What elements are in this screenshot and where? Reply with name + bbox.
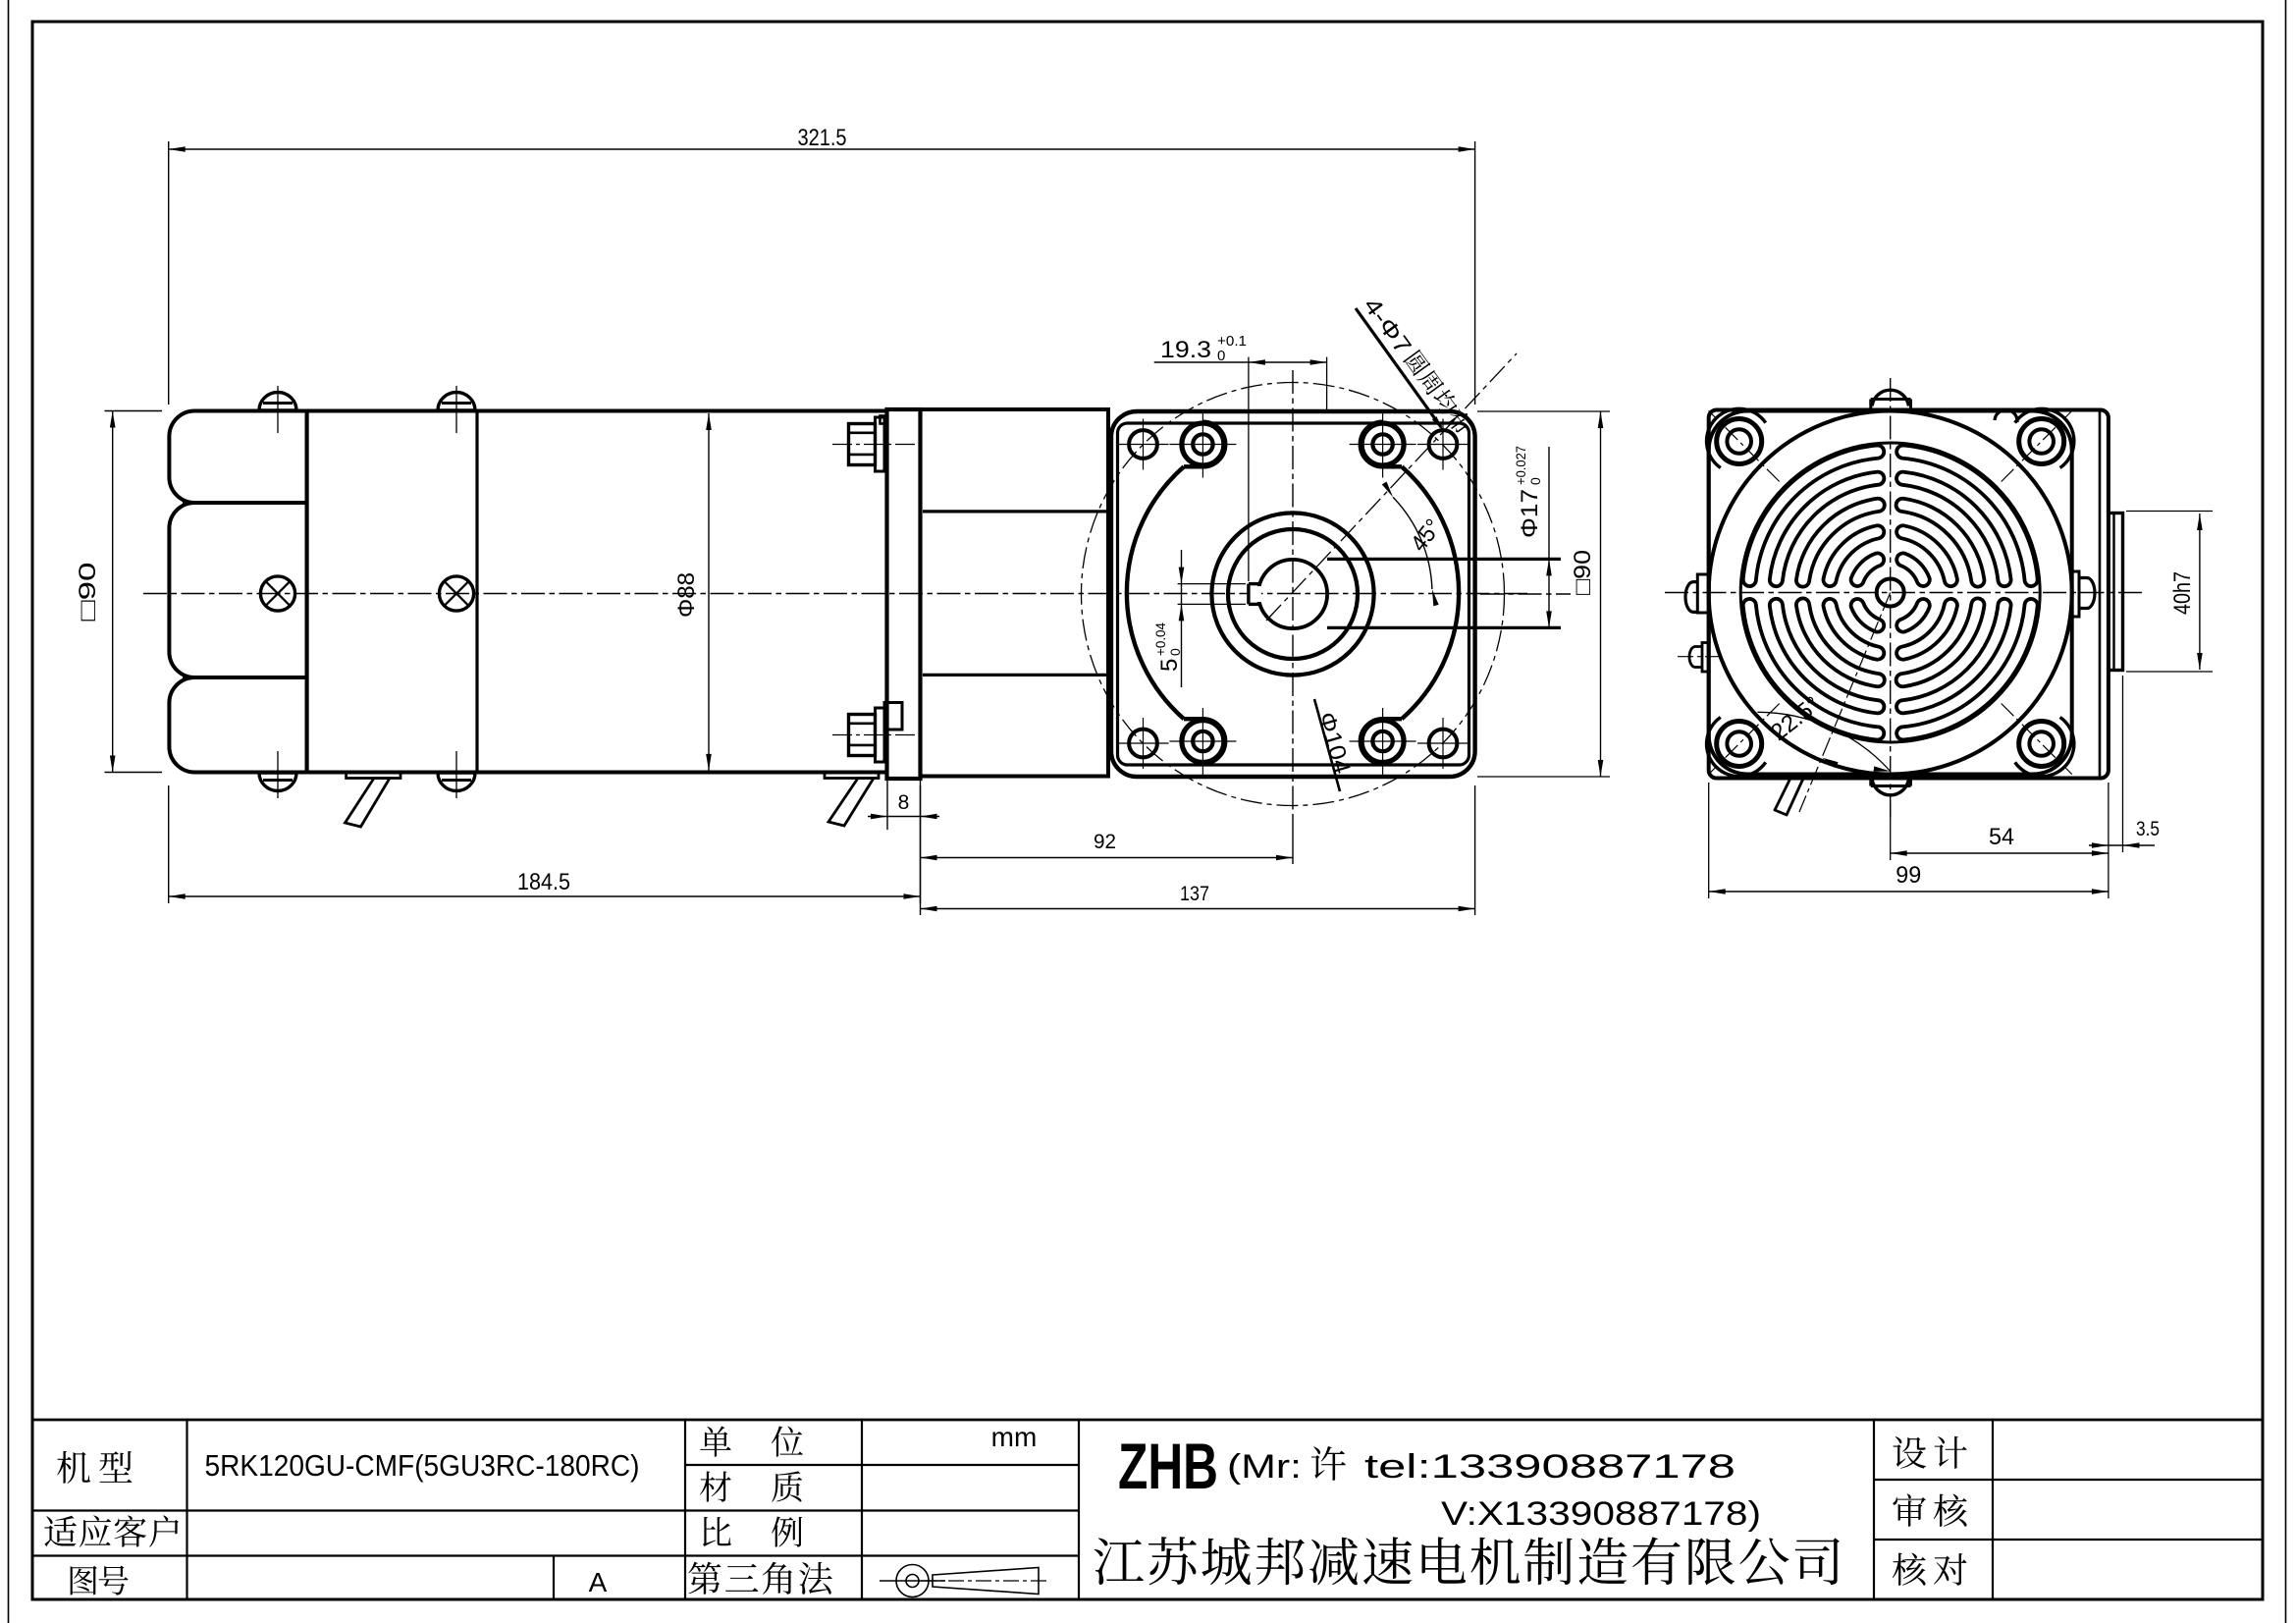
svg-text:40h7: 40h7 (2169, 571, 2196, 615)
svg-text:□90: □90 (1570, 550, 1596, 595)
svg-text:0: 0 (1217, 348, 1225, 364)
svg-text:5RK120GU-CMF(5GU3RC-180RC): 5RK120GU-CMF(5GU3RC-180RC) (205, 1448, 640, 1483)
svg-text:V:X13390887178): V:X13390887178) (1441, 1495, 1761, 1533)
svg-text:8: 8 (898, 791, 910, 814)
svg-text:137: 137 (1180, 883, 1209, 905)
svg-text:mm: mm (991, 1422, 1038, 1452)
svg-text:0: 0 (1527, 477, 1543, 485)
svg-text:5: 5 (1156, 659, 1183, 672)
svg-text:184.5: 184.5 (517, 869, 570, 895)
svg-text:+0.04: +0.04 (1152, 622, 1168, 656)
svg-text:99: 99 (1896, 862, 1921, 889)
svg-text:0: 0 (1167, 648, 1183, 656)
svg-text:92: 92 (1094, 831, 1116, 853)
svg-text:A: A (589, 1567, 608, 1597)
svg-text:+0.027: +0.027 (1513, 446, 1528, 485)
svg-text:54: 54 (1989, 824, 2014, 850)
svg-text:tel:13390887178: tel:13390887178 (1364, 1448, 1735, 1486)
svg-text:□90: □90 (75, 563, 101, 622)
svg-text:Φ17: Φ17 (1517, 489, 1543, 538)
svg-text:321.5: 321.5 (798, 125, 847, 151)
svg-text:3.5: 3.5 (2136, 818, 2160, 840)
svg-text:19.3: 19.3 (1160, 337, 1211, 363)
svg-text:Φ88: Φ88 (673, 572, 700, 618)
svg-text:ZHB: ZHB (1118, 1430, 1218, 1502)
svg-text:(Mr:: (Mr: (1227, 1448, 1302, 1486)
